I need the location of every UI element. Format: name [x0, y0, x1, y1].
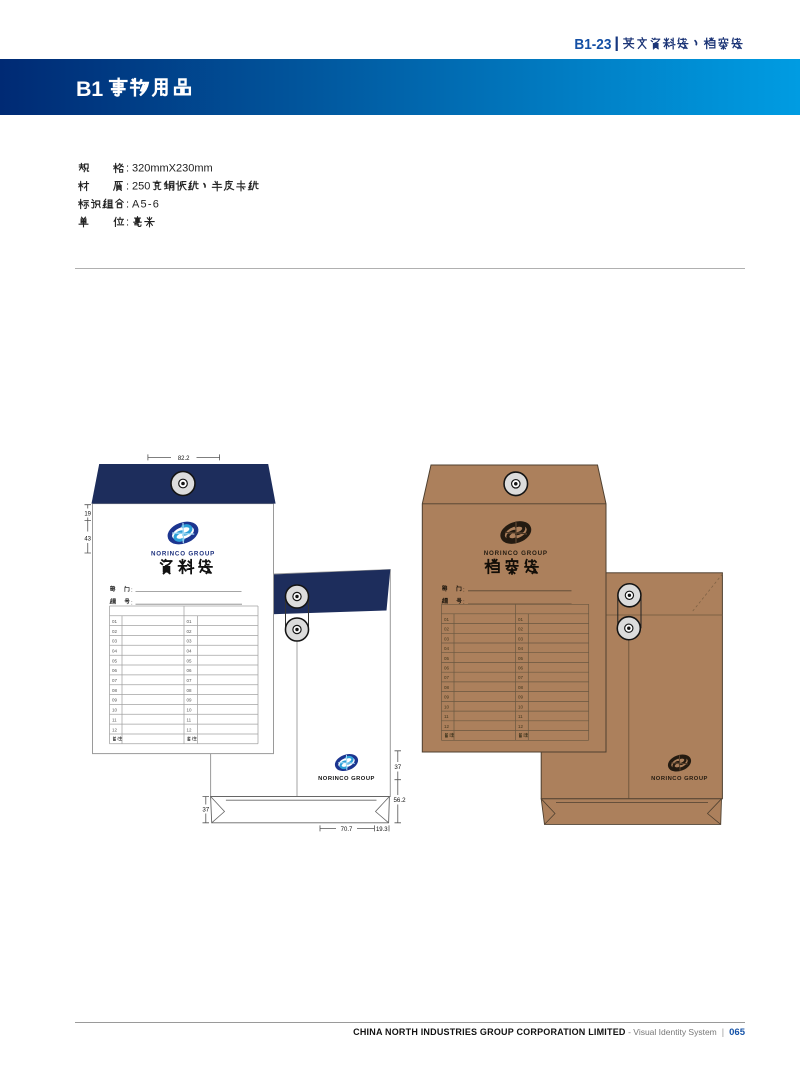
svg-text:06: 06	[112, 668, 118, 673]
svg-text:37: 37	[394, 764, 401, 771]
svg-text:01: 01	[112, 619, 118, 624]
svg-text:B1-23: B1-23	[574, 36, 611, 53]
svg-text:04: 04	[444, 646, 450, 651]
svg-text:06: 06	[187, 668, 193, 673]
svg-text:09: 09	[112, 698, 118, 703]
svg-text:82.2: 82.2	[178, 456, 190, 462]
svg-text::: :	[126, 199, 129, 211]
svg-text:01: 01	[444, 617, 450, 622]
svg-text:02: 02	[518, 627, 524, 632]
svg-text:04: 04	[187, 649, 193, 654]
svg-text:09: 09	[444, 695, 450, 700]
svg-text:08: 08	[187, 688, 193, 693]
svg-text:19.3: 19.3	[376, 827, 388, 833]
svg-text:04: 04	[518, 646, 524, 651]
svg-text:B1: B1	[76, 77, 103, 101]
svg-text:NORINCO GROUP: NORINCO GROUP	[151, 551, 215, 558]
svg-text:03: 03	[112, 639, 118, 644]
svg-text:10: 10	[112, 708, 118, 713]
svg-text:07: 07	[444, 675, 450, 680]
svg-text:09: 09	[518, 695, 524, 700]
svg-text:A5-6: A5-6	[132, 199, 160, 211]
svg-text:11: 11	[112, 717, 117, 722]
svg-text:10: 10	[187, 708, 193, 713]
svg-text:08: 08	[112, 688, 118, 693]
svg-text:06: 06	[518, 666, 524, 671]
svg-text:12: 12	[187, 727, 193, 732]
svg-text::: :	[126, 217, 129, 229]
svg-text:250: 250	[132, 181, 150, 193]
svg-text:12: 12	[518, 724, 524, 729]
svg-text:43: 43	[84, 536, 91, 542]
svg-text::: :	[126, 163, 129, 175]
svg-text:01: 01	[187, 619, 193, 624]
svg-text:05: 05	[518, 656, 524, 661]
svg-text:11: 11	[187, 717, 192, 722]
svg-text:11: 11	[518, 714, 523, 719]
svg-text:02: 02	[444, 627, 450, 632]
svg-text:37: 37	[202, 807, 209, 814]
svg-text:02: 02	[187, 629, 193, 634]
svg-text:10: 10	[444, 704, 450, 709]
svg-text:NORINCO GROUP: NORINCO GROUP	[318, 776, 375, 782]
svg-text:05: 05	[187, 658, 193, 663]
svg-text:19: 19	[84, 511, 91, 517]
svg-text:03: 03	[518, 636, 524, 641]
svg-text:320mmX230mm: 320mmX230mm	[132, 163, 213, 175]
svg-text:05: 05	[112, 658, 118, 663]
svg-text:02: 02	[112, 629, 118, 634]
svg-text:56.2: 56.2	[393, 797, 406, 804]
svg-text:04: 04	[112, 649, 118, 654]
svg-text::: :	[126, 181, 129, 193]
svg-text:08: 08	[444, 685, 450, 690]
svg-text:NORINCO GROUP: NORINCO GROUP	[651, 776, 708, 782]
svg-text:70.7: 70.7	[341, 827, 353, 833]
svg-text:NORINCO GROUP: NORINCO GROUP	[484, 550, 548, 557]
svg-text:11: 11	[444, 714, 449, 719]
svg-text:08: 08	[518, 685, 524, 690]
svg-text:09: 09	[187, 698, 193, 703]
svg-text:07: 07	[112, 678, 118, 683]
svg-text:07: 07	[187, 678, 193, 683]
svg-text:03: 03	[444, 636, 450, 641]
svg-text:05: 05	[444, 656, 450, 661]
svg-text:07: 07	[518, 675, 524, 680]
svg-text:10: 10	[518, 704, 524, 709]
svg-text:03: 03	[187, 639, 193, 644]
svg-text:06: 06	[444, 666, 450, 671]
svg-text:12: 12	[112, 727, 118, 732]
svg-text:12: 12	[444, 724, 450, 729]
svg-text:01: 01	[518, 617, 524, 622]
